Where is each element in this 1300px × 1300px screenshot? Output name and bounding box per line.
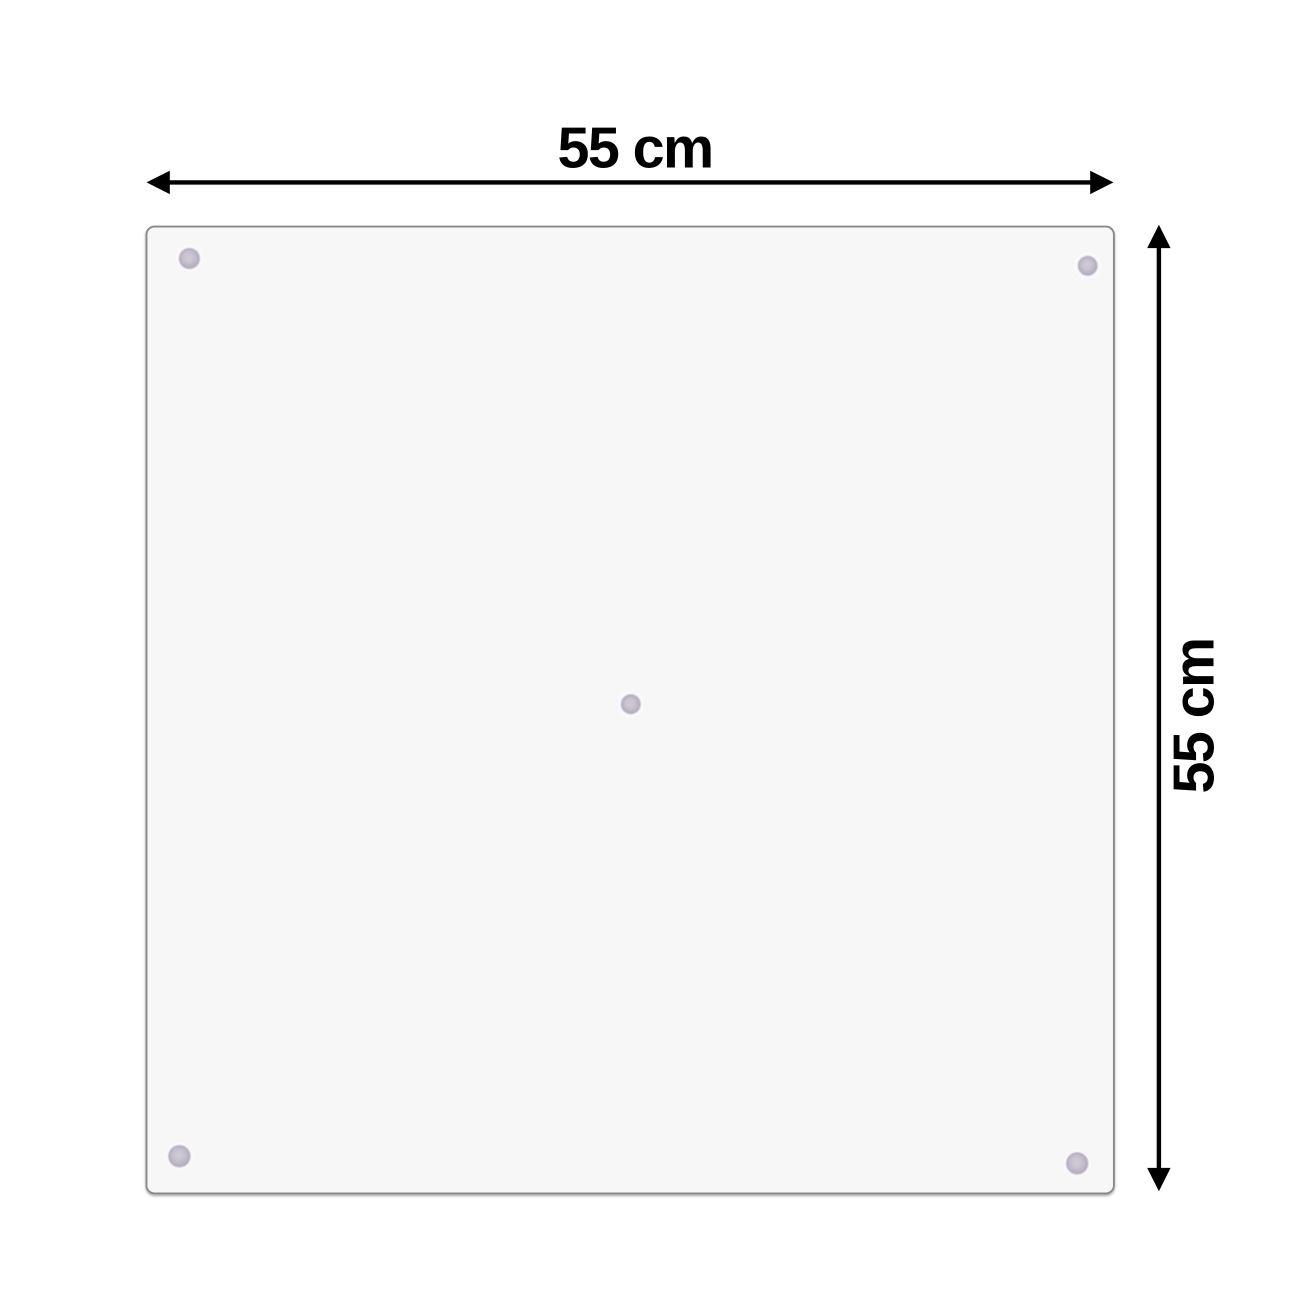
svg-text:55 cm: 55 cm — [1163, 638, 1227, 793]
svg-text:55 cm: 55 cm — [557, 117, 712, 181]
